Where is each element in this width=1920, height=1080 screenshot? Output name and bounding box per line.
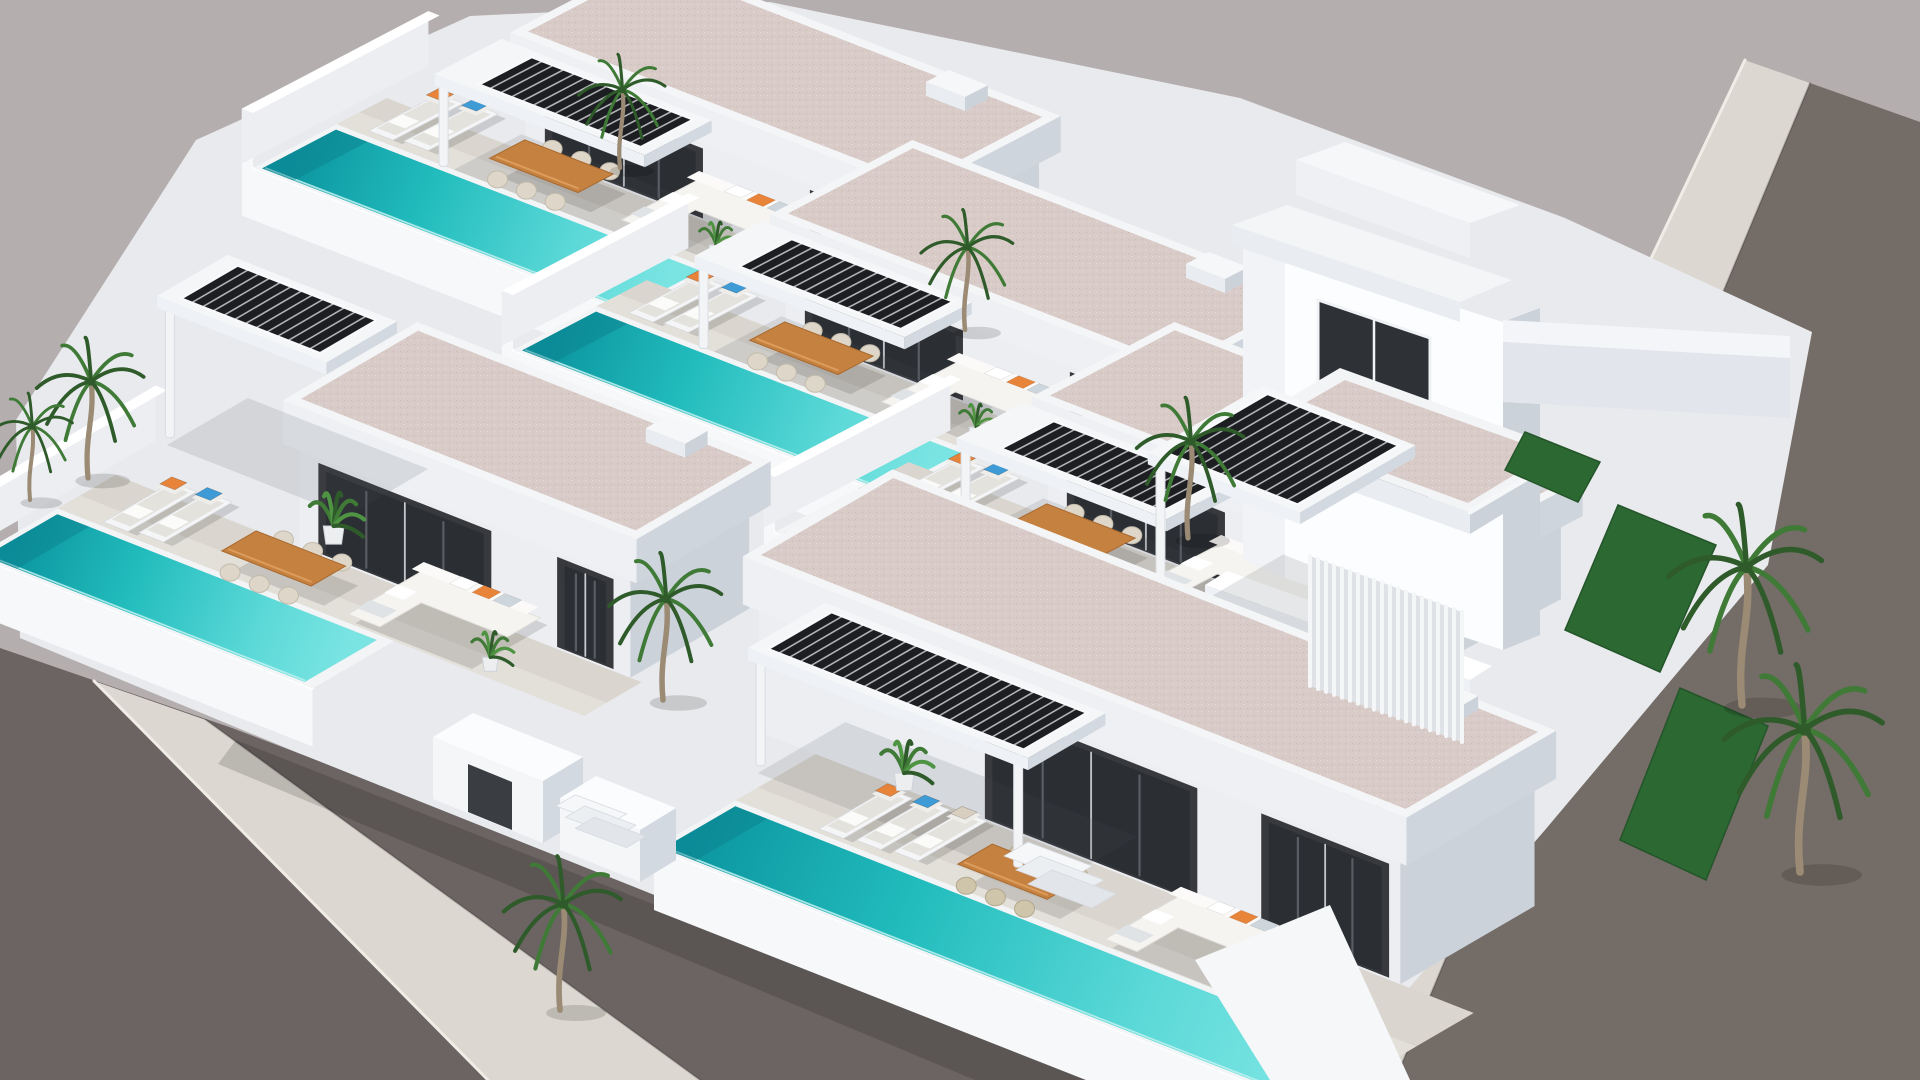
palm-crown [1187,437,1195,445]
pot [894,773,914,791]
palm-crown [619,86,626,93]
dining-chair [545,193,565,210]
pergola-pillar [756,654,765,766]
palm-crown [662,594,671,603]
pot [482,657,498,671]
pergola-pillar [165,302,174,438]
palm-shadow [20,497,62,508]
palm-shadow [954,327,1001,340]
palm-crown [964,244,971,251]
palm-crown [87,377,95,385]
villa-complex-3d-render [0,0,1920,1080]
render-viewport [0,0,1920,1080]
dining-chair [776,364,796,381]
palm-shadow [1781,864,1862,886]
palm-crown [1741,561,1753,573]
palm-shadow [650,695,707,710]
dining-chair [956,877,976,894]
palm-crown [29,423,35,429]
dining-chair [985,889,1005,906]
dining-chair [516,182,536,199]
palm-crown [559,900,568,909]
dining-chair [220,564,240,581]
palm-shadow [610,165,654,177]
dining-chair [1015,900,1035,917]
pergola-pillar [439,79,448,167]
pergola-pillar [699,261,708,349]
palm-shadow [546,1005,606,1021]
palm-shadow [75,474,130,489]
palm-crown [1798,723,1810,735]
dining-chair [805,375,825,392]
dining-chair [278,587,298,604]
pot [323,526,344,544]
dining-chair [488,171,508,188]
dining-chair [748,353,768,370]
dining-chair [249,576,269,593]
palm-shadow [1175,534,1230,549]
